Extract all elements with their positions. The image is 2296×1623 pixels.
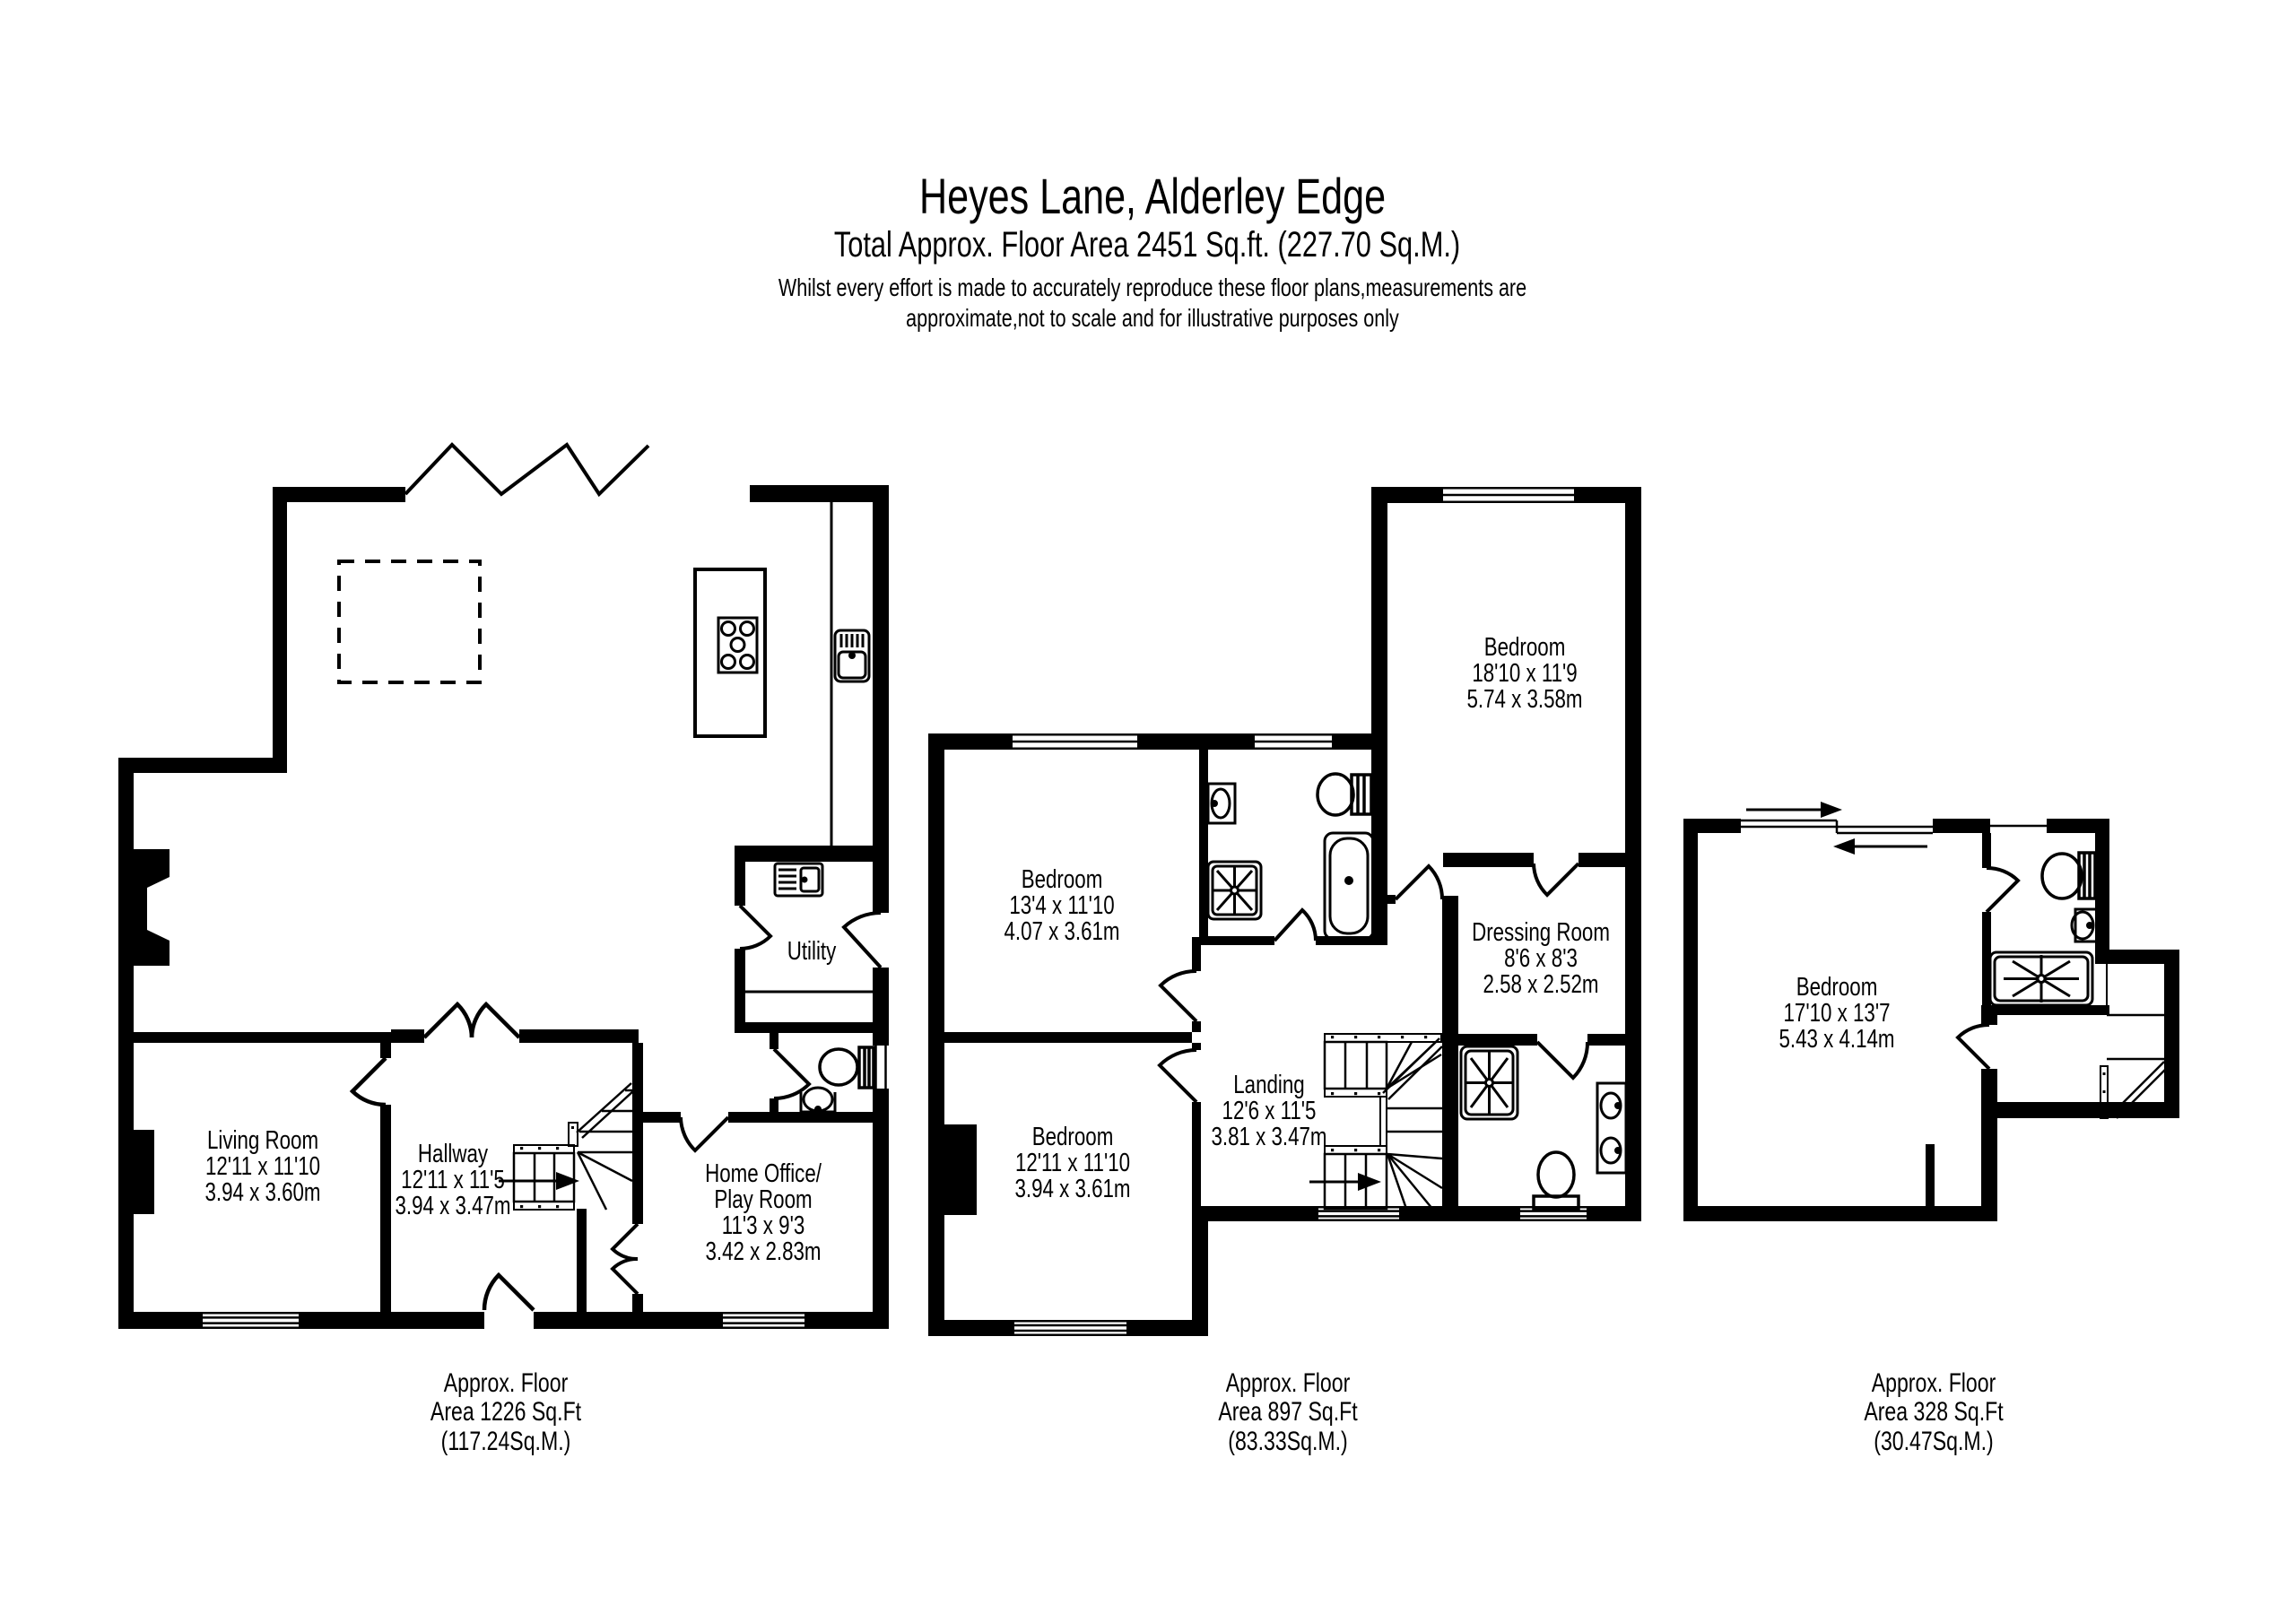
svg-text:Bedroom: Bedroom: [1796, 973, 1878, 1001]
svg-text:approximate,not to scale and f: approximate,not to scale and for illustr…: [906, 304, 1399, 332]
svg-text:2.58 x 2.52m: 2.58 x 2.52m: [1483, 970, 1598, 998]
svg-text:(117.24Sq.M.): (117.24Sq.M.): [441, 1426, 571, 1456]
svg-text:Area 328 Sq.Ft: Area 328 Sq.Ft: [1864, 1396, 2004, 1427]
svg-text:17'10 x 13'7: 17'10 x 13'7: [1783, 999, 1890, 1027]
svg-text:Landing: Landing: [1233, 1071, 1304, 1098]
svg-text:12'11 x 11'10: 12'11 x 11'10: [1015, 1149, 1130, 1176]
svg-text:(83.33Sq.M.): (83.33Sq.M.): [1228, 1426, 1347, 1456]
svg-text:5.43 x 4.14m: 5.43 x 4.14m: [1779, 1025, 1894, 1053]
svg-text:18'10 x 11'9: 18'10 x 11'9: [1472, 659, 1577, 687]
svg-text:Play Room: Play Room: [714, 1185, 812, 1213]
svg-text:Home Office/: Home Office/: [705, 1159, 822, 1187]
svg-text:13'4 x 11'10: 13'4 x 11'10: [1009, 891, 1114, 919]
svg-text:Bedroom: Bedroom: [1022, 865, 1103, 893]
svg-text:Dressing Room: Dressing Room: [1472, 918, 1610, 946]
svg-text:Bedroom: Bedroom: [1032, 1123, 1114, 1150]
svg-text:3.94 x 3.47m: 3.94 x 3.47m: [395, 1192, 510, 1219]
svg-text:5.74 x 3.58m: 5.74 x 3.58m: [1466, 685, 1582, 713]
svg-text:Whilst every effort is made to: Whilst every effort is made to accuratel…: [778, 273, 1526, 301]
svg-text:3.94 x 3.60m: 3.94 x 3.60m: [204, 1178, 320, 1206]
svg-text:Utility: Utility: [787, 937, 837, 965]
svg-text:3.94 x 3.61m: 3.94 x 3.61m: [1014, 1175, 1130, 1202]
svg-text:4.07 x 3.61m: 4.07 x 3.61m: [1004, 917, 1119, 945]
svg-text:Area 897 Sq.Ft: Area 897 Sq.Ft: [1218, 1396, 1358, 1427]
svg-text:Bedroom: Bedroom: [1484, 633, 1566, 661]
svg-text:12'11 x 11'5: 12'11 x 11'5: [401, 1166, 505, 1193]
svg-text:Living Room: Living Room: [207, 1126, 318, 1154]
svg-text:Approx. Floor: Approx. Floor: [1226, 1367, 1351, 1398]
svg-text:8'6 x 8'3: 8'6 x 8'3: [1504, 944, 1578, 972]
svg-text:3.42 x 2.83m: 3.42 x 2.83m: [705, 1237, 821, 1265]
svg-text:Heyes Lane, Alderley Edge: Heyes Lane, Alderley Edge: [919, 169, 1386, 225]
svg-text:Area 1226 Sq.Ft: Area 1226 Sq.Ft: [430, 1396, 582, 1427]
svg-text:11'3 x 9'3: 11'3 x 9'3: [722, 1211, 805, 1239]
svg-text:12'11 x 11'10: 12'11 x 11'10: [205, 1152, 320, 1180]
svg-text:12'6 x 11'5: 12'6 x 11'5: [1222, 1097, 1317, 1124]
svg-text:Hallway: Hallway: [418, 1140, 488, 1167]
svg-text:Approx. Floor: Approx. Floor: [444, 1367, 569, 1398]
svg-text:(30.47Sq.M.): (30.47Sq.M.): [1874, 1426, 1993, 1456]
svg-text:Approx. Floor: Approx. Floor: [1872, 1367, 1996, 1398]
svg-text:3.81 x 3.47m: 3.81 x 3.47m: [1211, 1123, 1326, 1150]
svg-text:Total Approx. Floor Area 2451: Total Approx. Floor Area 2451 Sq.ft. (22…: [834, 224, 1460, 265]
